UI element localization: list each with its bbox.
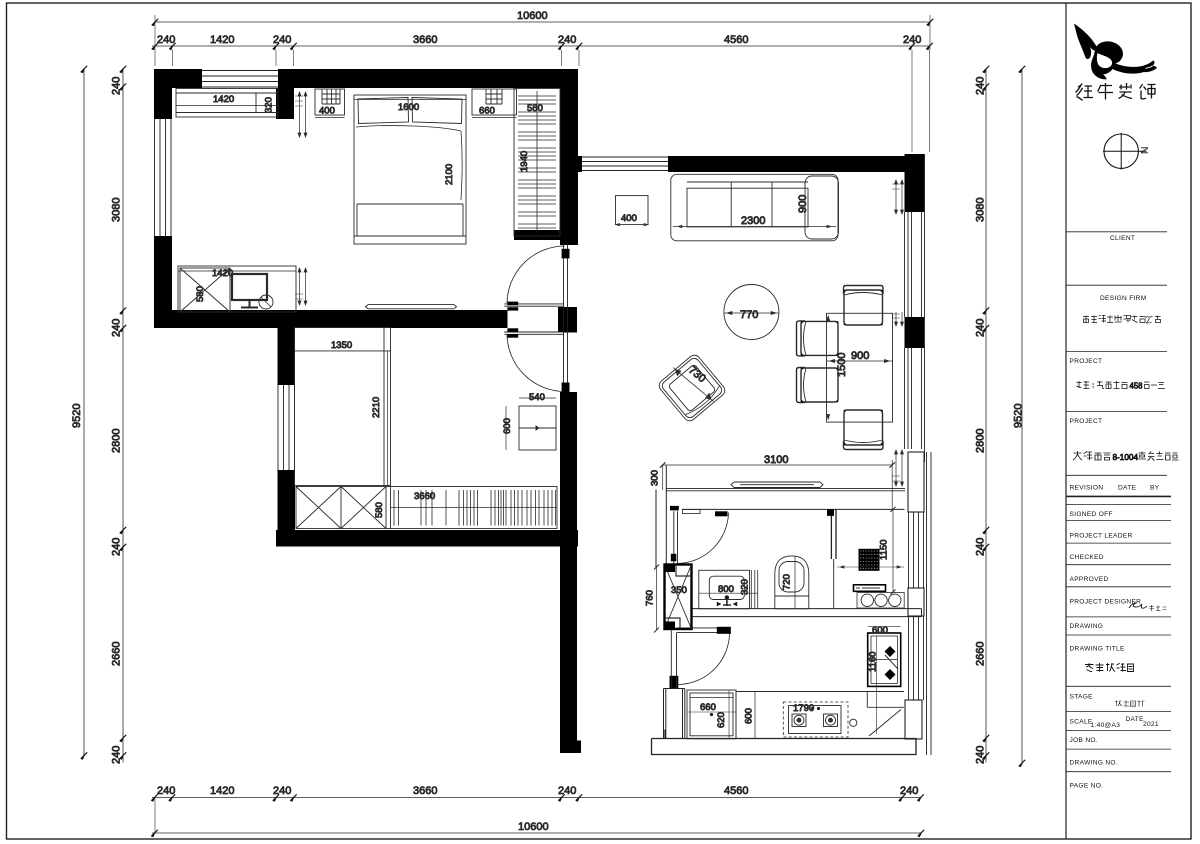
svg-text:600: 600 bbox=[744, 708, 755, 724]
svg-text:SIGNED OFF: SIGNED OFF bbox=[1070, 511, 1113, 518]
svg-text:9520: 9520 bbox=[71, 404, 83, 428]
svg-text:1420: 1420 bbox=[213, 94, 234, 105]
svg-text:1160: 1160 bbox=[868, 652, 879, 672]
svg-text:DATE: DATE bbox=[1126, 716, 1145, 723]
svg-text:2021: 2021 bbox=[1143, 721, 1159, 728]
svg-text:APPROVED: APPROVED bbox=[1070, 576, 1109, 583]
svg-text:DRAWING TITLE: DRAWING TITLE bbox=[1070, 646, 1125, 653]
svg-text:240: 240 bbox=[111, 746, 123, 764]
svg-text:1790: 1790 bbox=[793, 703, 814, 714]
svg-text:240: 240 bbox=[157, 785, 175, 797]
svg-text:320: 320 bbox=[264, 97, 275, 113]
svg-text:1940: 1940 bbox=[519, 151, 530, 172]
svg-text:4560: 4560 bbox=[724, 785, 748, 797]
svg-text:760: 760 bbox=[645, 590, 656, 606]
svg-text:PROJECT LEADER: PROJECT LEADER bbox=[1070, 533, 1133, 540]
svg-text:BY: BY bbox=[1150, 485, 1160, 492]
svg-text:320: 320 bbox=[740, 579, 751, 595]
svg-text:580: 580 bbox=[374, 502, 385, 518]
svg-text:1420: 1420 bbox=[210, 785, 234, 797]
svg-text:900: 900 bbox=[797, 195, 809, 213]
svg-text:CHECKED: CHECKED bbox=[1070, 554, 1104, 561]
svg-text:2100: 2100 bbox=[444, 164, 455, 185]
svg-text:3660: 3660 bbox=[414, 491, 435, 502]
svg-text:PROJECT: PROJECT bbox=[1070, 418, 1103, 425]
svg-text:STAGE: STAGE bbox=[1070, 694, 1094, 701]
svg-text:4560: 4560 bbox=[724, 34, 748, 46]
svg-text:2660: 2660 bbox=[975, 642, 987, 666]
svg-text:1420: 1420 bbox=[210, 34, 234, 46]
svg-text:600: 600 bbox=[502, 418, 513, 434]
svg-text:240: 240 bbox=[975, 538, 987, 556]
svg-text:3100: 3100 bbox=[764, 454, 788, 466]
svg-text:1500: 1500 bbox=[836, 353, 848, 377]
svg-text:9520: 9520 bbox=[1013, 404, 1025, 428]
svg-text:770: 770 bbox=[740, 309, 758, 321]
svg-text:DRAWING: DRAWING bbox=[1070, 623, 1104, 630]
svg-text:350: 350 bbox=[671, 585, 687, 596]
svg-text:240: 240 bbox=[975, 77, 987, 95]
svg-text:1420: 1420 bbox=[212, 268, 233, 279]
svg-text:CLIENT: CLIENT bbox=[1110, 235, 1135, 242]
svg-text:PAGE NO.: PAGE NO. bbox=[1070, 783, 1104, 790]
svg-text:580: 580 bbox=[527, 103, 543, 114]
svg-text:240: 240 bbox=[975, 746, 987, 764]
svg-text:3080: 3080 bbox=[111, 198, 123, 222]
svg-text:3660: 3660 bbox=[413, 785, 437, 797]
svg-text:DRAWING NO.: DRAWING NO. bbox=[1070, 760, 1118, 767]
svg-text:240: 240 bbox=[273, 785, 291, 797]
svg-text:2800: 2800 bbox=[111, 429, 123, 453]
svg-text:240: 240 bbox=[975, 319, 987, 337]
svg-text:240: 240 bbox=[111, 319, 123, 337]
svg-text:240: 240 bbox=[273, 34, 291, 46]
svg-text:8-1004: 8-1004 bbox=[1113, 453, 1139, 462]
svg-text:400: 400 bbox=[319, 106, 335, 117]
svg-text:REVISION: REVISION bbox=[1070, 485, 1104, 492]
svg-text:240: 240 bbox=[157, 34, 175, 46]
svg-text:PROJECT: PROJECT bbox=[1070, 358, 1103, 365]
svg-text:2210: 2210 bbox=[371, 397, 382, 418]
svg-text:1350: 1350 bbox=[331, 340, 352, 351]
svg-text:1:40@A3: 1:40@A3 bbox=[1091, 722, 1121, 729]
svg-text:1150: 1150 bbox=[879, 540, 890, 560]
svg-text:660: 660 bbox=[700, 702, 716, 713]
svg-text:SCALE: SCALE bbox=[1070, 719, 1093, 726]
svg-text:2800: 2800 bbox=[975, 429, 987, 453]
svg-text:400: 400 bbox=[621, 213, 637, 224]
svg-text:240: 240 bbox=[558, 785, 576, 797]
svg-text:10600: 10600 bbox=[518, 821, 549, 833]
svg-text:660: 660 bbox=[479, 106, 495, 117]
svg-text:458: 458 bbox=[1130, 382, 1143, 391]
svg-text:580: 580 bbox=[195, 286, 206, 302]
svg-text:240: 240 bbox=[111, 538, 123, 556]
svg-text:1600: 1600 bbox=[398, 102, 419, 113]
svg-text:3080: 3080 bbox=[975, 198, 987, 222]
svg-text:3660: 3660 bbox=[413, 34, 437, 46]
svg-text:900: 900 bbox=[851, 350, 869, 362]
svg-text:2300: 2300 bbox=[741, 215, 765, 227]
svg-text:N: N bbox=[1138, 147, 1150, 155]
svg-text:2660: 2660 bbox=[111, 642, 123, 666]
svg-text:240: 240 bbox=[900, 785, 918, 797]
svg-text:240: 240 bbox=[558, 34, 576, 46]
svg-text:240: 240 bbox=[903, 34, 921, 46]
svg-text:720: 720 bbox=[782, 574, 793, 590]
svg-text:620: 620 bbox=[716, 712, 727, 728]
svg-text:300: 300 bbox=[650, 470, 661, 486]
svg-text:DATE: DATE bbox=[1118, 485, 1137, 492]
svg-text:240: 240 bbox=[111, 77, 123, 95]
svg-text:10600: 10600 bbox=[517, 10, 548, 22]
svg-text:540: 540 bbox=[529, 392, 545, 403]
svg-text:JOB NO.: JOB NO. bbox=[1070, 737, 1098, 744]
svg-text:PROJECT DESIGNER: PROJECT DESIGNER bbox=[1070, 599, 1142, 606]
svg-text:DESIGN FIRM: DESIGN FIRM bbox=[1100, 295, 1147, 302]
